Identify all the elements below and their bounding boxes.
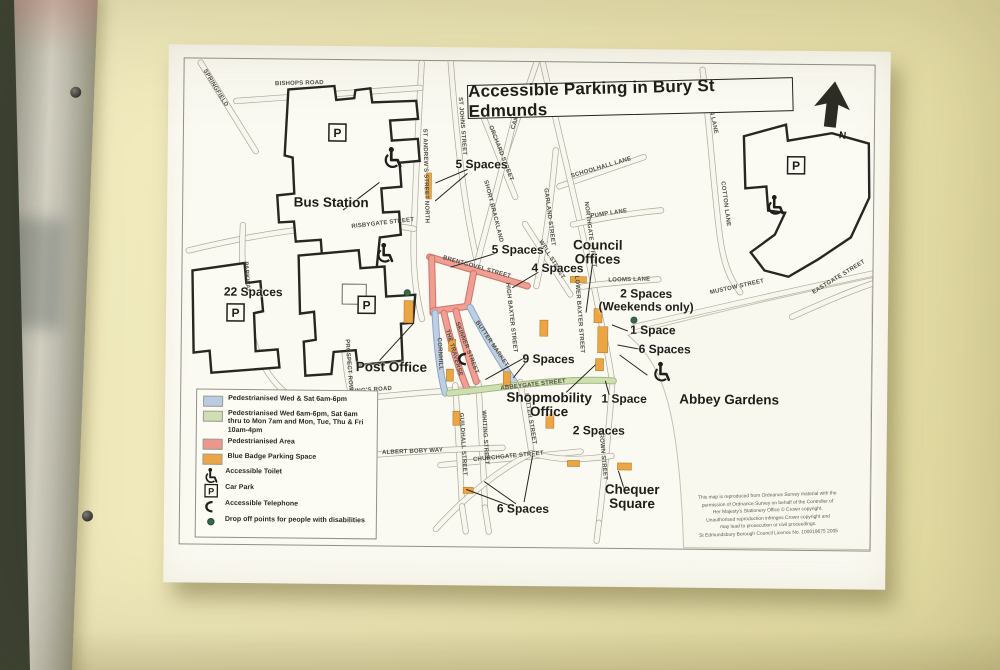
screw-bottom [82, 510, 93, 521]
map-drawing: P P P P N [180, 58, 875, 550]
svg-text:BISHOPS ROAD: BISHOPS ROAD [275, 80, 324, 87]
map-poster: P P P P N [163, 44, 891, 590]
car-park-p: P [792, 159, 800, 173]
north-label: N [838, 130, 846, 142]
svg-text:CANNON ST: CANNON ST [510, 93, 528, 131]
photo-backdrop: P P P P N [0, 0, 1000, 670]
svg-text:HIGH BAXTER STREET: HIGH BAXTER STREET [504, 282, 518, 353]
east-car-park [742, 124, 870, 277]
svg-text:SPRINGFIELD: SPRINGFIELD [202, 68, 230, 108]
screw-top [70, 87, 81, 98]
car-park-p: P [231, 306, 239, 320]
svg-text:BUTTER MARKET: BUTTER MARKET [474, 320, 510, 368]
metal-glare [4, 0, 98, 55]
abbey-gardens-area [626, 275, 873, 550]
svg-text:LOOMS LANE: LOOMS LANE [608, 277, 650, 284]
wall-floor-shadow [0, 630, 1000, 670]
post-office-car-park [297, 250, 415, 377]
svg-text:ST ANDREW'S STREET NORTH: ST ANDREW'S STREET NORTH [421, 128, 429, 223]
svg-text:SCHOOLHALL LANE: SCHOOLHALL LANE [570, 156, 632, 179]
map-frame: P P P P N [179, 57, 876, 551]
car-park-p: P [333, 126, 341, 140]
car-park-p: P [363, 298, 371, 312]
wheelchair-icon [378, 243, 392, 262]
svg-text:MUSTOW STREET: MUSTOW STREET [710, 278, 765, 296]
svg-text:ALBERT BOBY WAY: ALBERT BOBY WAY [382, 448, 443, 457]
